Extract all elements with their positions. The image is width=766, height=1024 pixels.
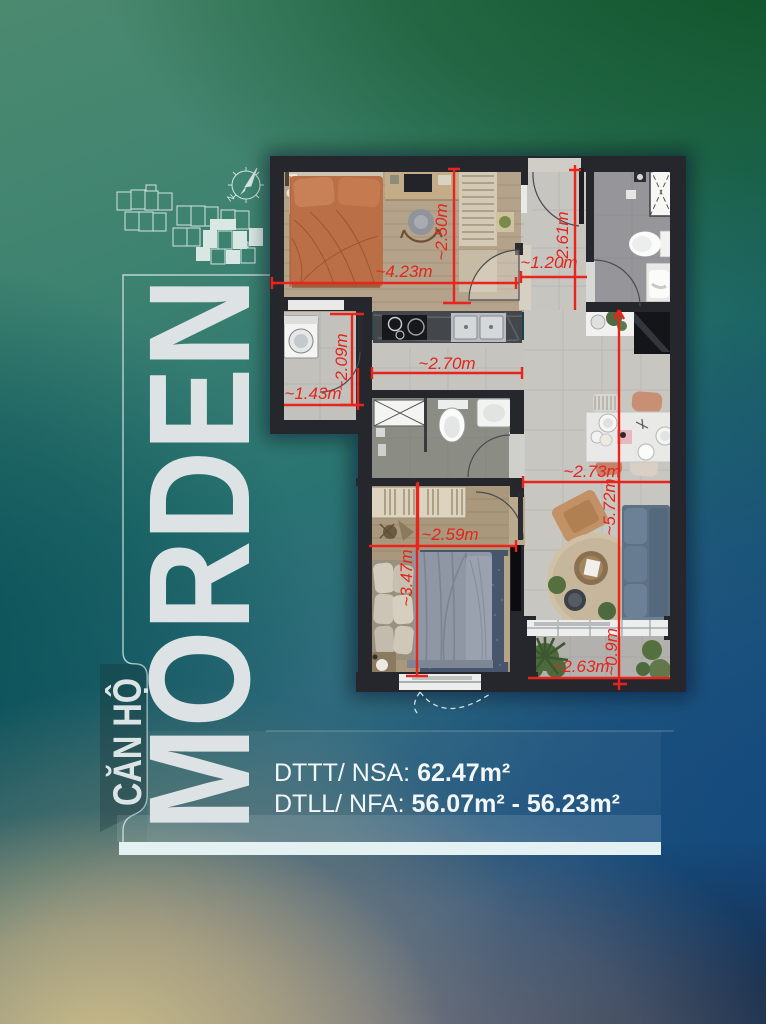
svg-text:CĂN HỘ: CĂN HỘ <box>104 678 150 806</box>
svg-text:~5.72m: ~5.72m <box>600 478 619 535</box>
svg-text:~2.50m: ~2.50m <box>432 203 451 260</box>
svg-text:DTTT/ NSA: 62.47m²: DTTT/ NSA: 62.47m² <box>274 759 510 787</box>
svg-text:~4.23m: ~4.23m <box>375 262 432 281</box>
svg-text:~2.59m: ~2.59m <box>421 525 478 544</box>
svg-text:~2.70m: ~2.70m <box>418 354 475 373</box>
svg-text:DTLL/ NFA: 56.07m² - 56.23m²: DTLL/ NFA: 56.07m² - 56.23m² <box>274 790 620 818</box>
svg-text:~3.47m: ~3.47m <box>397 549 416 606</box>
svg-text:~0.9m: ~0.9m <box>602 628 621 676</box>
svg-text:~2.09m: ~2.09m <box>332 333 351 390</box>
svg-text:~1.43m: ~1.43m <box>284 384 341 403</box>
svg-text:~1.20m: ~1.20m <box>520 253 577 272</box>
svg-text:~2.73m: ~2.73m <box>563 462 620 481</box>
